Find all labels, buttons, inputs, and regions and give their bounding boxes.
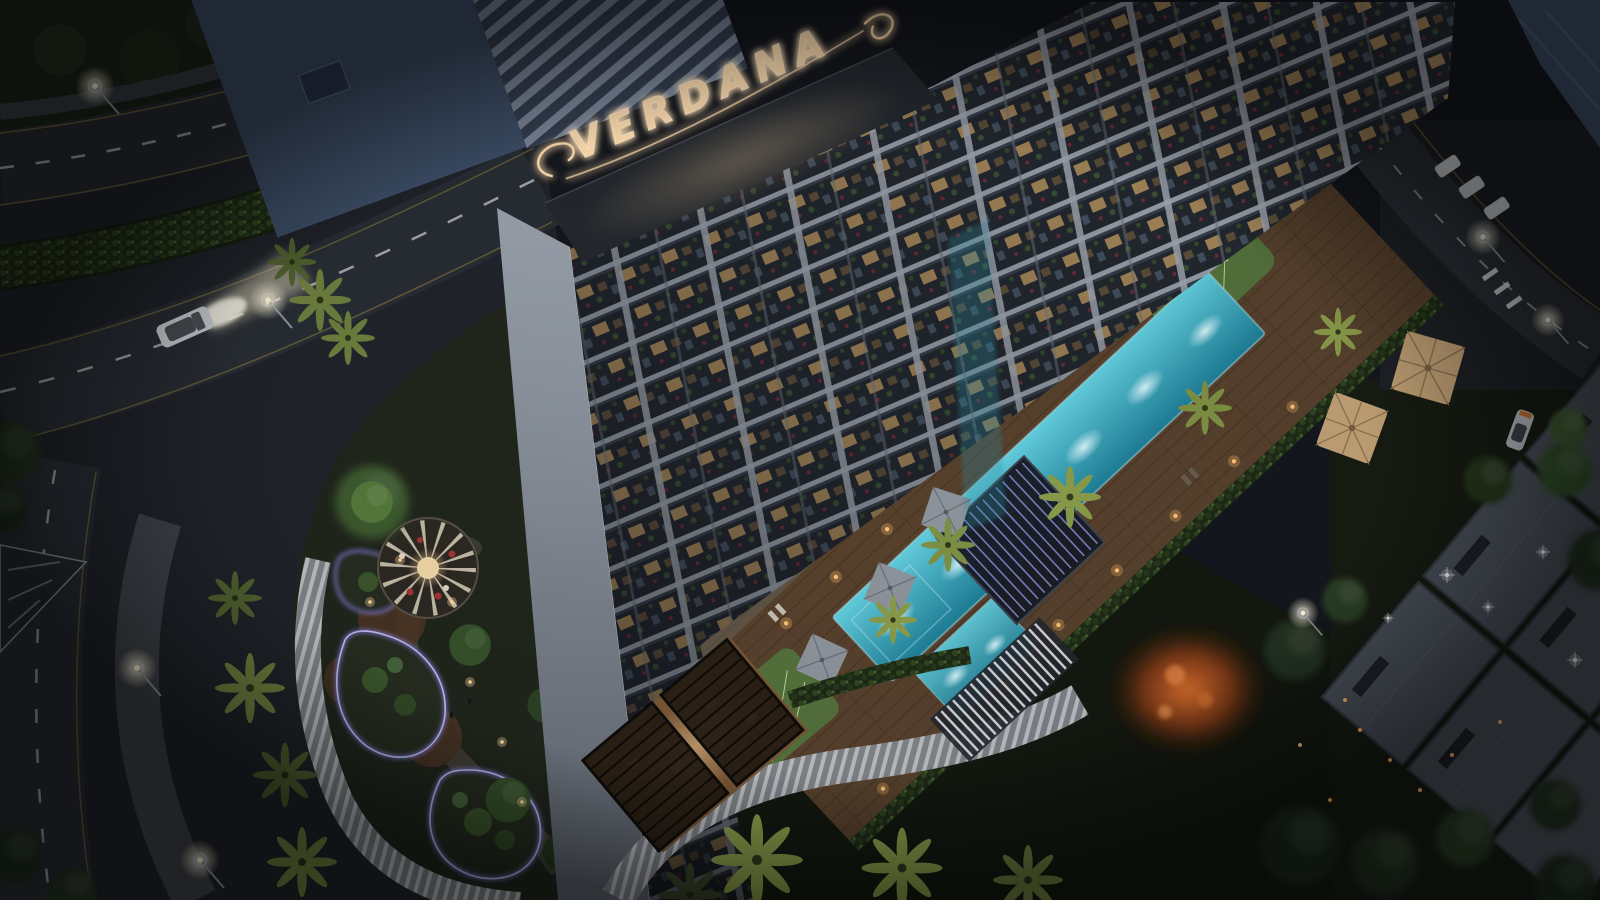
vignette-overlay (0, 0, 1600, 900)
scene-canvas: VERDANA (0, 0, 1600, 900)
aerial-night-render: VERDANA (0, 0, 1600, 900)
